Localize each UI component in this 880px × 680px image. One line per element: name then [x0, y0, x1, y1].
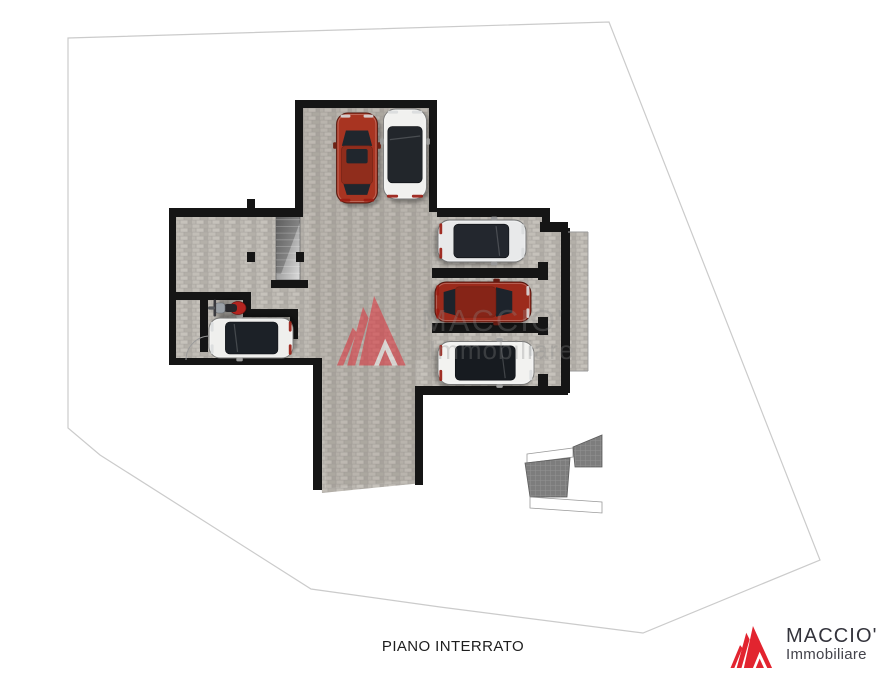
- car-headlight-right: [412, 111, 422, 114]
- moto-seat: [224, 304, 237, 312]
- car-windshield: [342, 131, 372, 146]
- car-taillight-left: [340, 199, 351, 202]
- car-headlight-left: [388, 111, 398, 114]
- car-taillight-right: [439, 370, 442, 381]
- car-mirror-left: [380, 138, 384, 145]
- floorplan-page: MACCIO'Immobiliare PIANO INTERRATO MACCI…: [0, 0, 880, 680]
- car-taillight-right: [412, 195, 423, 198]
- car-headlight-left: [341, 115, 351, 118]
- wall-segment: [271, 280, 308, 288]
- vehicle-suv-red: [333, 113, 381, 207]
- wall-segment: [437, 208, 550, 217]
- car-taillight-right: [364, 199, 375, 202]
- plan-title: PIANO INTERRATO: [328, 638, 578, 655]
- wall-segment: [169, 208, 176, 365]
- car-taillight-left: [289, 344, 292, 354]
- wall-segment: [200, 300, 208, 352]
- wall-segment: [169, 358, 322, 365]
- car-sunroof: [346, 149, 367, 163]
- wall-segment: [313, 358, 322, 490]
- brand-name: MACCIO': [786, 626, 878, 646]
- wall-segment: [296, 252, 304, 262]
- vehicle-motorcycle: [208, 299, 247, 317]
- car-taillight-right: [439, 248, 442, 259]
- wall-segment: [295, 100, 437, 108]
- car-taillight-right: [289, 321, 292, 331]
- staircase: [276, 213, 300, 280]
- car-taillight-left: [436, 285, 439, 295]
- wall-segment: [538, 262, 548, 280]
- car-headlight-left: [211, 344, 214, 354]
- watermark-text-line1: MACCIO': [421, 303, 565, 338]
- wall-segment: [247, 252, 255, 262]
- wall-segment: [176, 292, 251, 300]
- brand-subtitle: Immobiliare: [786, 646, 878, 663]
- wall-segment: [432, 268, 548, 278]
- car-taillight-left: [439, 223, 442, 234]
- car-glass-roof: [225, 322, 278, 354]
- car-headlight-left: [521, 224, 524, 234]
- car-headlight-right: [521, 248, 524, 258]
- watermark: MACCIO'Immobiliare: [337, 296, 574, 366]
- wall-segment: [429, 100, 437, 212]
- car-taillight-left: [387, 195, 398, 198]
- exterior-structure-panel: [525, 458, 570, 497]
- vehicle-suv-white: [380, 109, 430, 203]
- car-glass-roof: [454, 224, 509, 258]
- car-mirror-right: [496, 384, 503, 388]
- car-mirror-left: [333, 142, 337, 149]
- moto-tank: [215, 303, 225, 313]
- car-headlight-right: [211, 322, 214, 332]
- car-mirror-left: [236, 358, 243, 362]
- car-mirror-right: [491, 262, 498, 266]
- car-mirror-right: [426, 138, 430, 145]
- car-mirror-left: [493, 279, 500, 283]
- vehicle-car-silver: [434, 217, 526, 266]
- car-mirror-left: [491, 217, 498, 221]
- wall-segment: [295, 100, 303, 213]
- vehicle-car-white-left: [209, 315, 297, 362]
- car-glass-roof: [388, 127, 422, 183]
- car-headlight-left: [526, 286, 529, 296]
- car-rear-window: [343, 184, 370, 195]
- agency-brand: MACCIO' Immobiliare: [728, 626, 878, 669]
- maccio-mountain-icon: [728, 626, 776, 669]
- wall-segment: [415, 392, 423, 485]
- exterior-structure-panel: [530, 497, 602, 513]
- floorplan-drawing: MACCIO'Immobiliare: [0, 0, 880, 680]
- exterior-stairs-structure: [525, 435, 602, 513]
- moto-front-wheel: [208, 306, 215, 309]
- wall-segment: [169, 208, 303, 217]
- wall-segment: [247, 199, 255, 208]
- watermark-text-line2: Immobiliare: [429, 335, 574, 365]
- exterior-structure-panel: [573, 435, 602, 467]
- car-headlight-right: [529, 370, 532, 380]
- car-headlight-right: [364, 115, 374, 118]
- wall-segment: [538, 374, 548, 388]
- floor-tint: [322, 360, 415, 488]
- brand-text: MACCIO' Immobiliare: [786, 626, 878, 663]
